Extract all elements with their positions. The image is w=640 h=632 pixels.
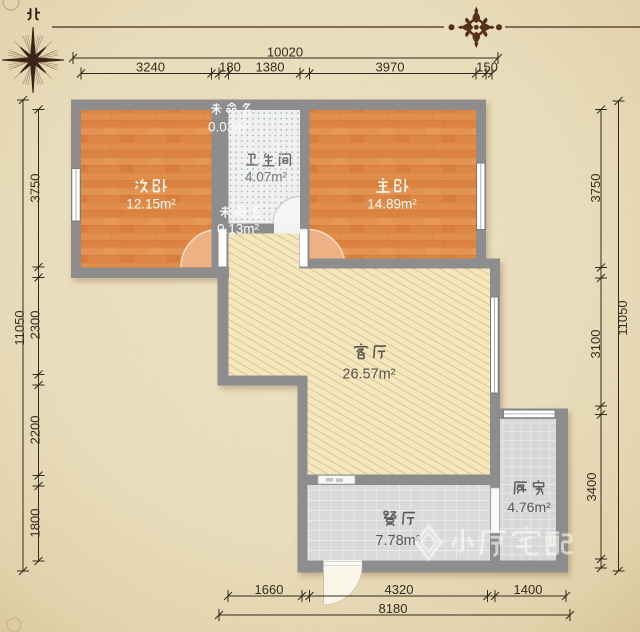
svg-text:0.03m²: 0.03m² [208, 120, 251, 135]
svg-text:11050: 11050 [615, 300, 630, 335]
svg-text:4.76m²: 4.76m² [507, 499, 551, 515]
svg-text:150: 150 [476, 60, 498, 75]
svg-text:1380: 1380 [256, 60, 285, 75]
svg-text:0.13m²: 0.13m² [217, 222, 260, 237]
svg-text:180: 180 [219, 60, 241, 75]
svg-text:2200: 2200 [28, 416, 43, 445]
svg-text:3750: 3750 [588, 174, 603, 203]
svg-text:3100: 3100 [588, 330, 603, 359]
svg-text:26.57m²: 26.57m² [342, 367, 395, 383]
svg-text:3400: 3400 [584, 473, 599, 502]
svg-text:3970: 3970 [376, 60, 405, 75]
svg-text:10020: 10020 [267, 45, 303, 60]
svg-text:11050: 11050 [12, 310, 27, 345]
svg-text:14.89m²: 14.89m² [367, 197, 417, 212]
svg-text:4320: 4320 [385, 582, 414, 597]
svg-text:4.07m²: 4.07m² [245, 170, 288, 185]
svg-text:3240: 3240 [136, 60, 165, 75]
svg-text:2300: 2300 [28, 311, 43, 340]
svg-text:7.78m²: 7.78m² [375, 533, 420, 549]
svg-text:8180: 8180 [379, 601, 408, 616]
svg-text:12.15m²: 12.15m² [126, 197, 176, 212]
svg-text:3750: 3750 [28, 174, 43, 203]
svg-text:1660: 1660 [255, 582, 284, 597]
svg-text:1800: 1800 [28, 509, 43, 538]
svg-text:1400: 1400 [514, 582, 543, 597]
